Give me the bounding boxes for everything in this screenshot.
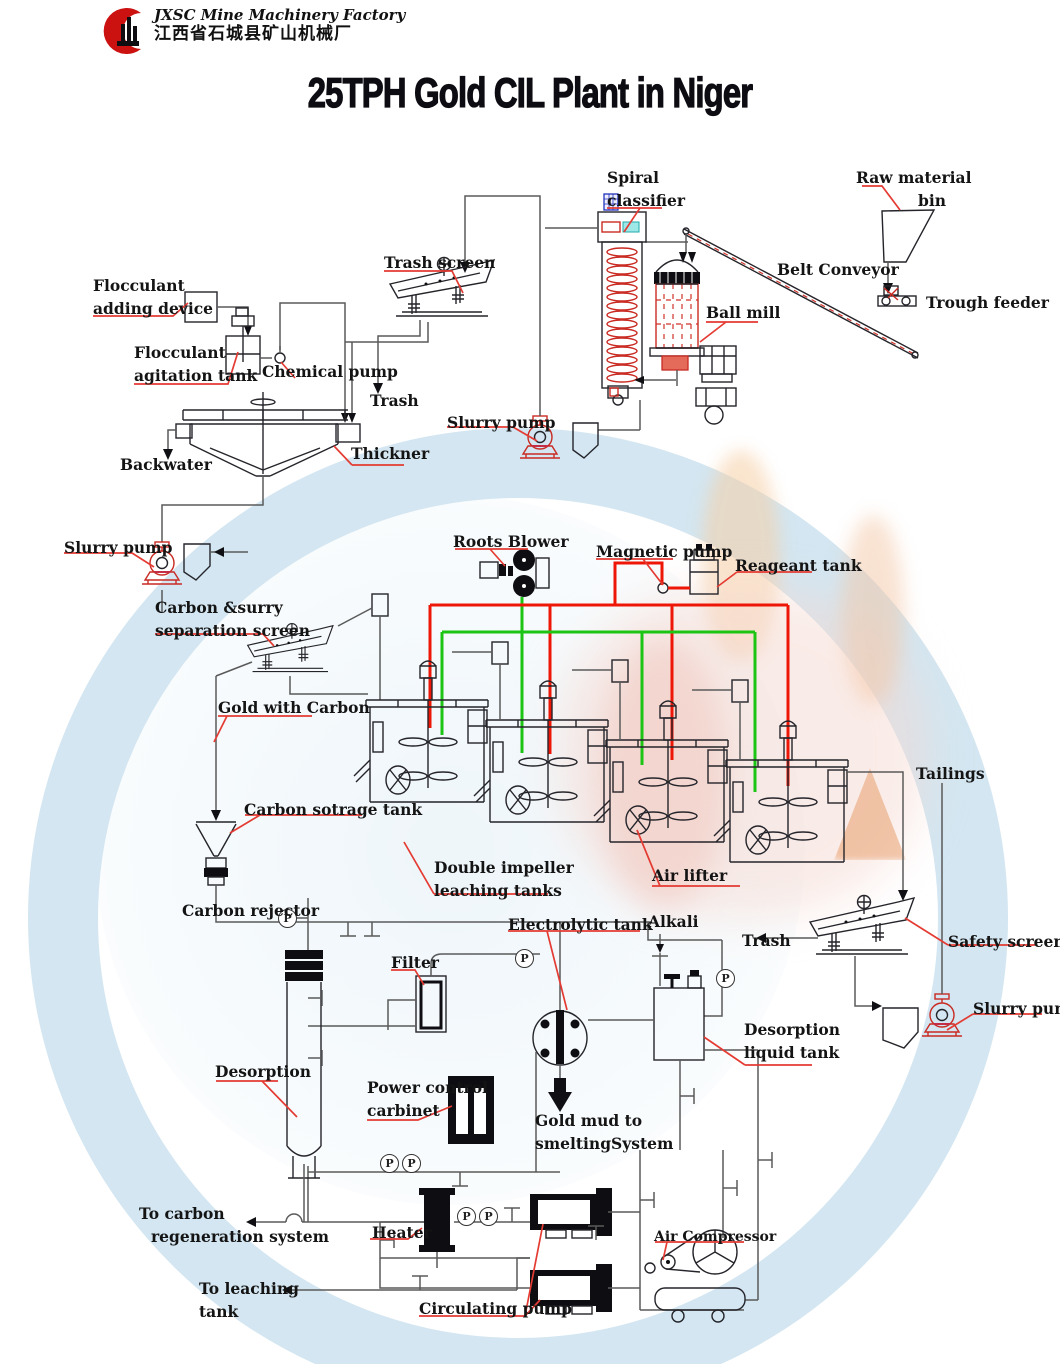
label-carbon-slurry-separation-screen: Carbon &surryseparation screen (155, 596, 310, 642)
label-circulating-pump: Circulating pump (419, 1297, 572, 1320)
label-reageant-tank: Reageant tank (735, 554, 862, 577)
label-trash-screen: Trash screen (384, 251, 495, 274)
label-desorption: Desorption (215, 1060, 311, 1083)
label-heater: Heater (372, 1221, 432, 1244)
label-carbon-sotrage-tank: Carbon sotrage tank (244, 798, 422, 821)
label-to-leaching-tank: To leachingtank (199, 1277, 299, 1323)
label-carbon-rejector: Carbon rejector (182, 899, 319, 922)
label-slurry-pump-thickener: Slurry pump (64, 536, 172, 559)
label-electrolytic-tank: Electrolytic tank (508, 913, 653, 936)
label-raw-material-bin: Raw materialbin (856, 166, 971, 212)
label-roots-blower: Roots Blower (453, 530, 569, 553)
label-filter: Filter (391, 951, 439, 974)
label-thickner: Thickner (351, 442, 429, 465)
label-tailings: Tailings (916, 762, 985, 785)
label-belt-conveyor: Belt Conveyor (777, 258, 899, 281)
label-air-compressor: Air Compressor (654, 1226, 776, 1249)
label-flocculant-adding-device: Flocculantadding device (93, 274, 213, 320)
label-spiral-classifier: Spiralclassifier (607, 166, 685, 212)
flowsheet-canvas: JXSC Mine Machinery Factory 江西省石城县矿山机械厂 … (0, 0, 1060, 1364)
label-trash-safety: Trash (742, 929, 791, 952)
label-trough-feeder: Trough feeder (926, 291, 1049, 314)
label-chemical-pump: Chemical pump (262, 360, 398, 383)
label-alkali: Alkali (648, 910, 698, 933)
label-safety-screen: Safety screen (948, 930, 1060, 953)
label-air-lifter: Air lifter (652, 864, 727, 887)
label-slurry-pump-tailings: Slurry pump (973, 997, 1060, 1020)
label-gold-mud-to-smelting: Gold mud tosmeltingSystem (535, 1109, 673, 1155)
label-desorption-liquid-tank: Desorptionliquid tank (744, 1018, 840, 1064)
label-backwater: Backwater (120, 453, 212, 476)
label-flocculant-agitation-tank: Flocculantagitation tank (134, 341, 257, 387)
diagram-labels-layer: SpiralclassifierRaw materialbinBelt Conv… (0, 0, 1060, 1364)
label-slurry-pump-mill: Slurry pump (447, 411, 555, 434)
label-double-impeller-leaching-tanks: Double impellerleaching tanks (434, 856, 574, 902)
label-power-control-carbinet: Power controlcarbinet (367, 1076, 488, 1122)
label-gold-with-carbon: Gold with Carbon (218, 696, 370, 719)
label-trash-top: Trash (370, 389, 419, 412)
label-ball-mill: Ball mill (706, 301, 780, 324)
label-magnetic-pump: Magnetic pump (596, 540, 732, 563)
label-to-carbon-regeneration: To carbonregeneration system (139, 1202, 329, 1248)
